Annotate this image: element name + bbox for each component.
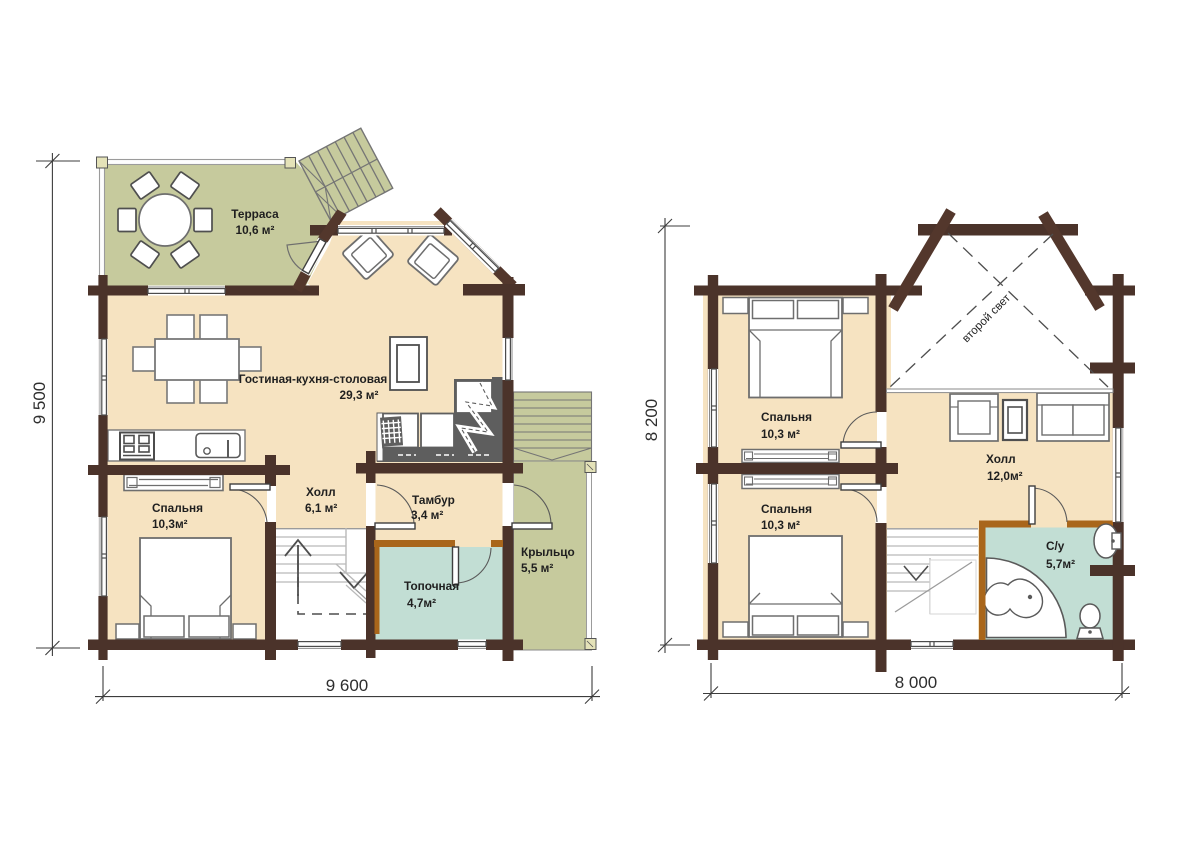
svg-text:Крыльцо: Крыльцо (521, 545, 575, 559)
svg-text:8 200: 8 200 (642, 399, 661, 442)
svg-text:4,7м²: 4,7м² (407, 596, 436, 610)
svg-text:3,4 м²: 3,4 м² (411, 508, 443, 522)
svg-text:12,0м²: 12,0м² (987, 469, 1023, 483)
svg-text:5,7м²: 5,7м² (1046, 557, 1075, 571)
svg-text:Терраса: Терраса (231, 207, 279, 221)
svg-text:10,3 м²: 10,3 м² (761, 427, 800, 441)
svg-text:10,3м²: 10,3м² (152, 517, 188, 531)
svg-text:5,5 м²: 5,5 м² (521, 561, 553, 575)
svg-text:6,1 м²: 6,1 м² (305, 501, 337, 515)
svg-text:Гостиная-кухня-столовая: Гостиная-кухня-столовая (239, 372, 388, 386)
svg-text:29,3 м²: 29,3 м² (340, 388, 379, 402)
svg-text:Спальня: Спальня (761, 410, 812, 424)
svg-text:С/у: С/у (1046, 539, 1065, 553)
svg-text:Спальня: Спальня (152, 501, 203, 515)
svg-text:Холл: Холл (986, 452, 1016, 466)
svg-text:10,3 м²: 10,3 м² (761, 518, 800, 532)
svg-text:Тамбур: Тамбур (412, 493, 455, 507)
svg-text:второй свет: второй свет (960, 292, 1013, 345)
svg-text:10,6 м²: 10,6 м² (236, 223, 275, 237)
svg-text:8 000: 8 000 (895, 673, 938, 692)
svg-text:Топочная: Топочная (404, 579, 459, 593)
svg-text:9 600: 9 600 (326, 676, 369, 695)
svg-text:9 500: 9 500 (30, 382, 49, 425)
svg-text:Холл: Холл (306, 485, 336, 499)
svg-text:Спальня: Спальня (761, 502, 812, 516)
